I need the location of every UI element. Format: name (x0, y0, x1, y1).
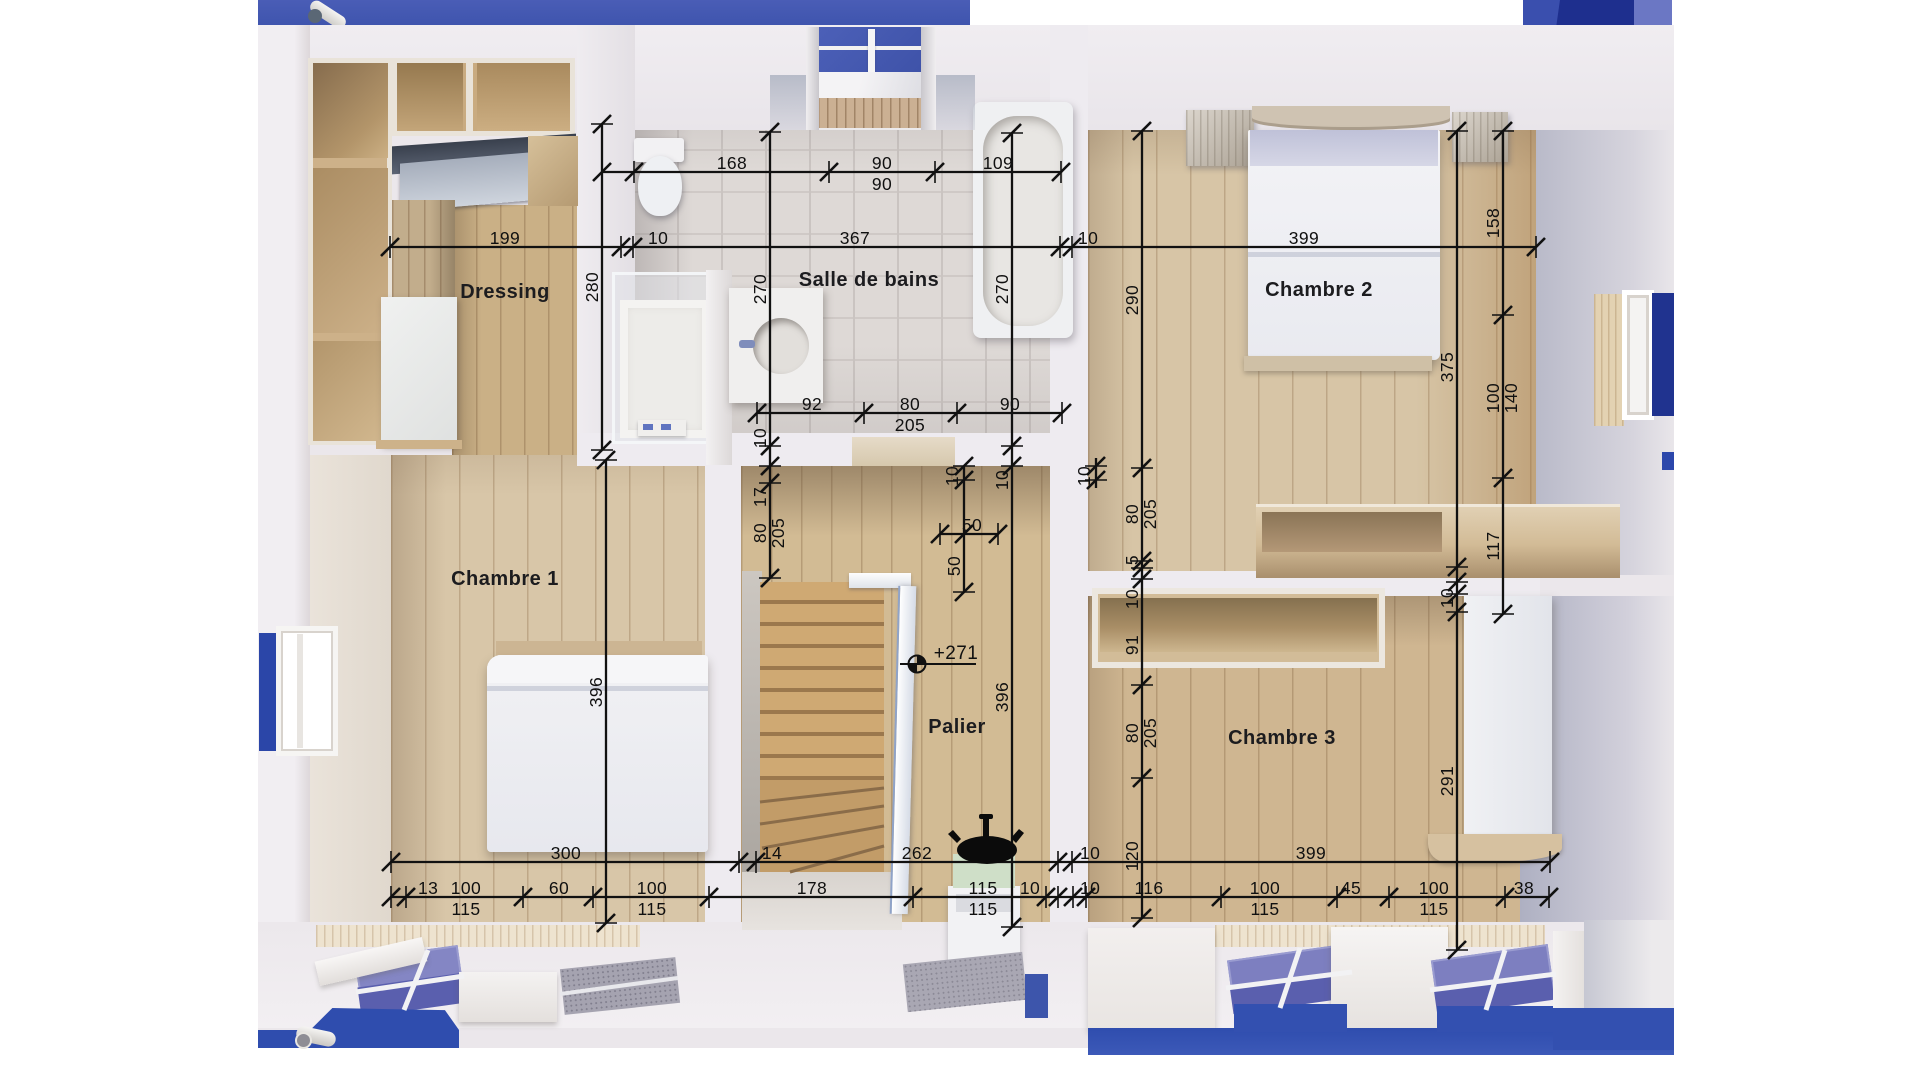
svg-text:+271: +271 (934, 643, 978, 664)
svg-text:10: 10 (1078, 228, 1098, 248)
svg-text:399: 399 (1296, 843, 1326, 863)
svg-text:116: 116 (1134, 878, 1163, 898)
svg-text:168: 168 (717, 153, 747, 173)
svg-text:Dressing: Dressing (460, 281, 550, 303)
svg-text:100: 100 (451, 878, 481, 898)
svg-text:178: 178 (797, 878, 827, 898)
svg-text:14: 14 (762, 843, 782, 863)
svg-text:270: 270 (750, 274, 770, 304)
svg-text:396: 396 (586, 677, 606, 707)
svg-text:17: 17 (750, 487, 770, 507)
svg-text:300: 300 (551, 843, 581, 863)
svg-text:10: 10 (1074, 466, 1094, 486)
svg-text:367: 367 (840, 228, 870, 248)
svg-text:Chambre 3: Chambre 3 (1228, 727, 1336, 749)
svg-text:92: 92 (802, 394, 822, 414)
svg-text:120: 120 (1122, 841, 1142, 871)
svg-text:199: 199 (490, 228, 520, 248)
svg-text:45: 45 (1341, 878, 1361, 898)
svg-text:10: 10 (648, 228, 668, 248)
svg-text:38: 38 (1514, 878, 1534, 898)
svg-text:115: 115 (637, 899, 666, 919)
svg-text:90: 90 (1000, 394, 1020, 414)
svg-text:91: 91 (1122, 635, 1142, 655)
svg-text:80: 80 (750, 523, 770, 543)
svg-text:100: 100 (637, 878, 667, 898)
svg-text:80: 80 (900, 394, 920, 414)
svg-text:270: 270 (992, 274, 1012, 304)
svg-text:396: 396 (992, 682, 1012, 712)
svg-text:10: 10 (1020, 878, 1040, 898)
svg-text:90: 90 (872, 174, 892, 194)
svg-text:Palier: Palier (928, 716, 985, 738)
svg-text:10: 10 (1080, 878, 1100, 898)
svg-text:399: 399 (1289, 228, 1319, 248)
svg-text:115: 115 (1419, 899, 1448, 919)
svg-text:158: 158 (1483, 208, 1503, 238)
svg-text:140: 140 (1501, 383, 1521, 413)
svg-text:80: 80 (1122, 504, 1142, 524)
svg-text:10: 10 (942, 466, 962, 486)
svg-text:100: 100 (1250, 878, 1280, 898)
svg-text:100: 100 (1483, 383, 1503, 413)
svg-text:115: 115 (968, 878, 997, 898)
svg-text:205: 205 (1140, 718, 1160, 748)
svg-text:Chambre 1: Chambre 1 (451, 568, 559, 590)
svg-text:117: 117 (1483, 531, 1503, 560)
svg-text:205: 205 (895, 415, 925, 435)
svg-text:Salle de bains: Salle de bains (799, 269, 939, 291)
svg-text:13: 13 (418, 878, 438, 898)
svg-text:375: 375 (1437, 352, 1457, 382)
svg-text:60: 60 (549, 878, 569, 898)
svg-text:115: 115 (1250, 899, 1279, 919)
svg-text:80: 80 (1122, 723, 1142, 743)
svg-text:Chambre 2: Chambre 2 (1265, 279, 1373, 301)
svg-text:115: 115 (451, 899, 480, 919)
svg-text:262: 262 (902, 843, 932, 863)
svg-text:100: 100 (1419, 878, 1449, 898)
svg-text:5: 5 (1122, 555, 1142, 565)
svg-text:10: 10 (1437, 588, 1457, 608)
svg-text:290: 290 (1122, 285, 1142, 315)
svg-text:205: 205 (1140, 499, 1160, 529)
svg-text:50: 50 (944, 556, 964, 576)
svg-text:10: 10 (1080, 843, 1100, 863)
svg-text:280: 280 (582, 272, 602, 302)
svg-text:10: 10 (750, 428, 770, 448)
svg-text:10: 10 (1122, 589, 1142, 609)
svg-text:10: 10 (992, 470, 1012, 490)
svg-text:115: 115 (968, 899, 997, 919)
svg-text:291: 291 (1437, 766, 1457, 796)
svg-text:109: 109 (983, 153, 1013, 173)
svg-text:90: 90 (872, 153, 892, 173)
svg-text:205: 205 (768, 518, 788, 548)
